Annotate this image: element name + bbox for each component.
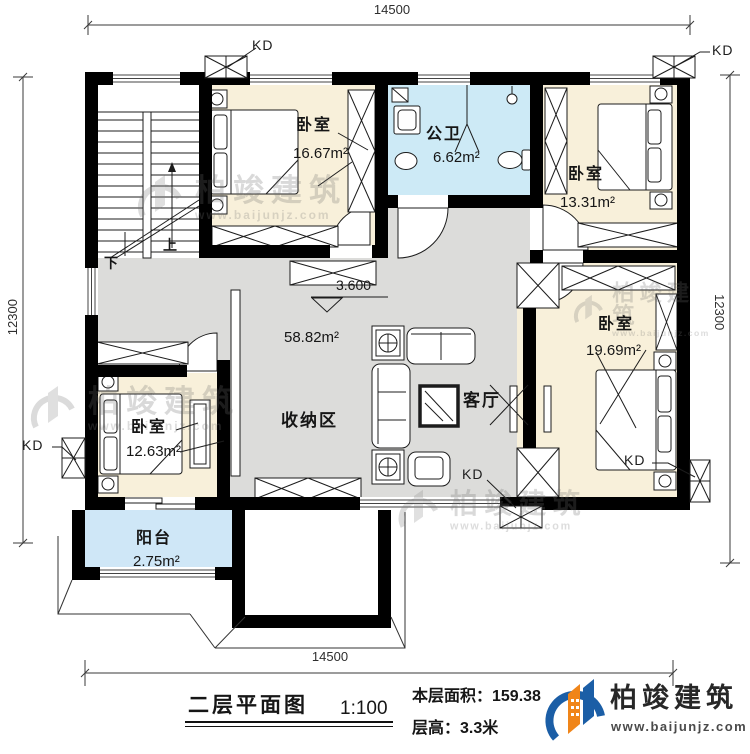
floor-area-text: 本层面积：159.38 <box>412 688 541 706</box>
dimension-bottom: 14500 <box>290 650 370 664</box>
kd-label-top-right: KD <box>712 43 733 58</box>
kd-label-bottom: KD <box>462 467 483 482</box>
floor-plan-drawing <box>0 0 750 754</box>
dimension-top: 14500 <box>352 3 432 17</box>
plan-title: 二层平面图 <box>188 694 308 717</box>
kd-label-right: KD <box>624 453 645 468</box>
title-underline <box>185 721 393 723</box>
room-name-balcony: 阳台 <box>136 530 172 548</box>
room-area-bedroom-right: 19.69m² <box>586 343 641 360</box>
floor-plan-page: 柏竣建筑 www.baijunjz.com 柏竣建筑 www.baijunjz.… <box>0 0 750 754</box>
room-area-bedroom-bottom-left: 12.63m² <box>126 444 181 461</box>
kd-box-right <box>690 460 710 502</box>
room-name-bedroom-top-right: 卧室 <box>568 166 604 184</box>
stairs <box>98 112 199 258</box>
living-room-label: 客厅 <box>463 392 501 411</box>
kd-box-bottom <box>500 506 542 528</box>
room-area-bedroom-top-left: 16.67m² <box>293 146 348 163</box>
brand-website: www.baijunjz.com <box>611 720 747 734</box>
kd-label-left: KD <box>22 438 43 453</box>
room-area-balcony: 2.75m² <box>133 554 180 571</box>
stair-down-label: 下 <box>104 256 118 271</box>
brand-name: 柏竣建筑 <box>610 684 738 714</box>
room-name-bathroom: 公卫 <box>426 126 462 144</box>
brand-logo <box>549 679 601 738</box>
dimension-left: 12300 <box>6 287 20 347</box>
room-area-bathroom: 6.62m² <box>433 150 480 167</box>
room-name-bedroom-right: 卧室 <box>598 316 634 334</box>
stair-up-label: 上 <box>163 238 177 253</box>
level-value: 3.600 <box>336 278 371 293</box>
floor-height-text: 层高：3.3米 <box>412 720 498 738</box>
room-name-bedroom-bottom-left: 卧室 <box>131 419 167 437</box>
plan-scale: 1:100 <box>340 699 388 720</box>
room-area-bedroom-top-right: 13.31m² <box>560 195 615 212</box>
storage-area-label: 收纳区 <box>281 412 338 431</box>
kd-box-top-left <box>205 56 247 78</box>
balcony-sliding-door <box>120 498 198 509</box>
kd-label-top-left: KD <box>252 38 273 53</box>
title-underline-2 <box>185 726 393 727</box>
hall-area: 58.82m² <box>284 330 339 347</box>
dimension-right: 12300 <box>712 282 726 342</box>
room-name-bedroom-top-left: 卧室 <box>296 117 332 135</box>
